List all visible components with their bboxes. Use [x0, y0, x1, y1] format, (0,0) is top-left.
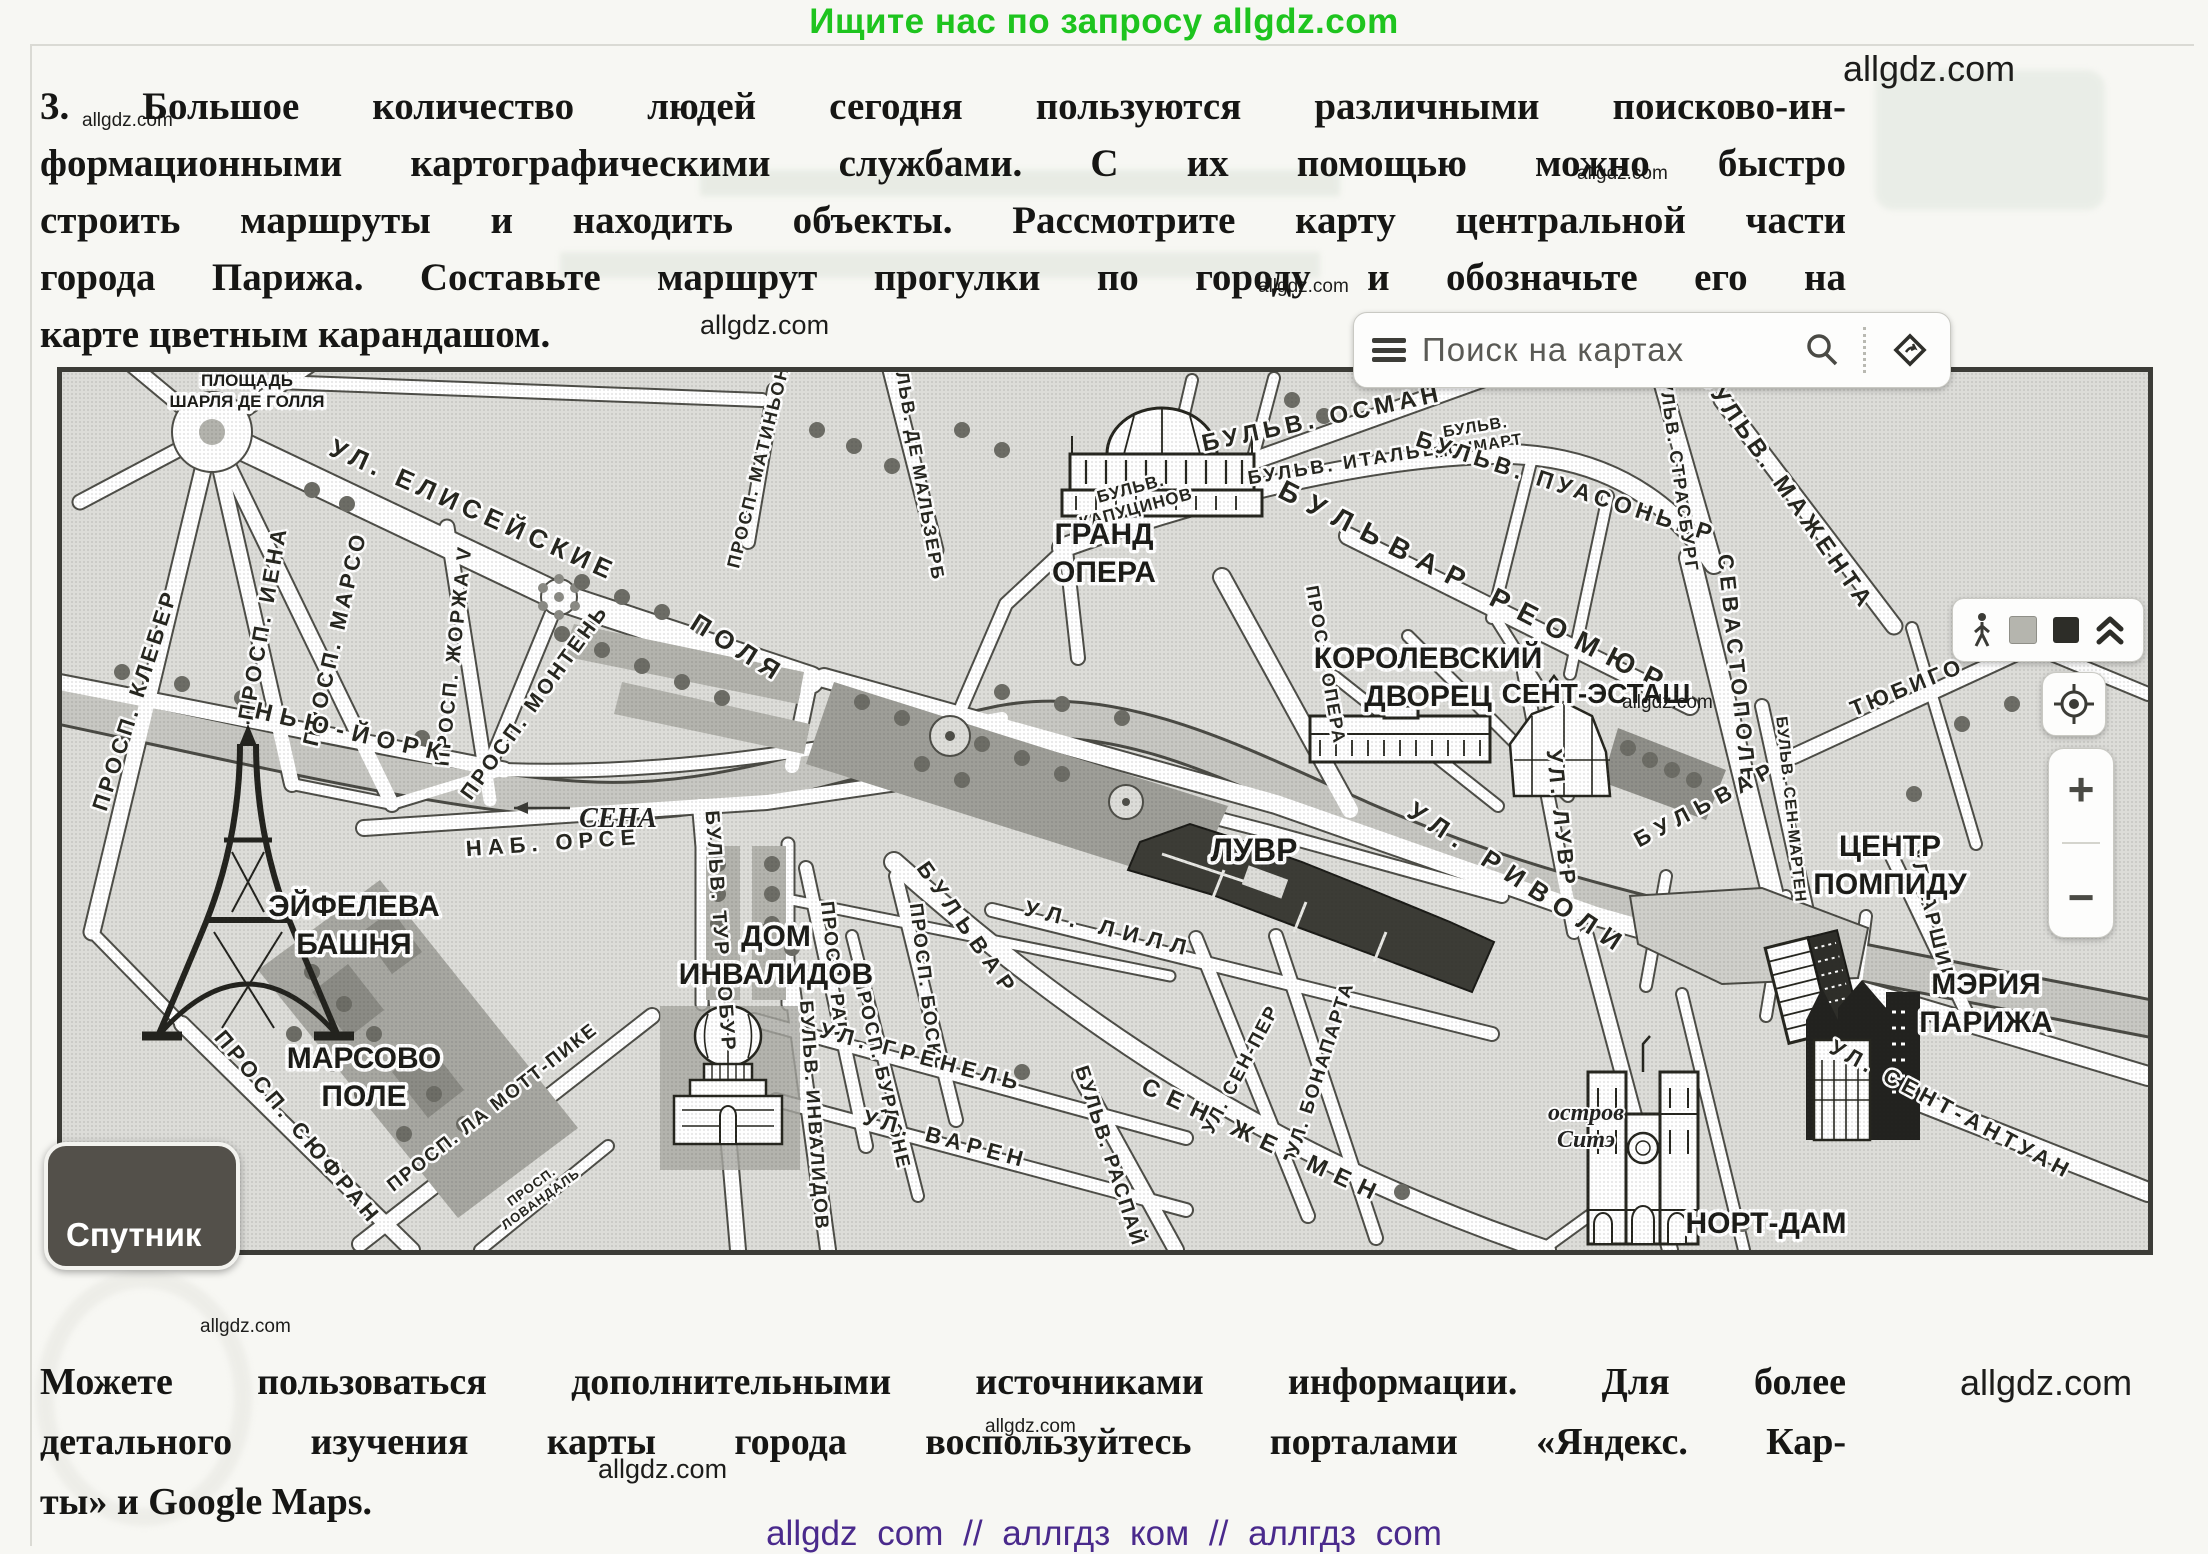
tree-icon	[1954, 716, 1970, 732]
map-canvas[interactable]: УЛ. ЕЛИСЕЙСКИЕПОЛЯПРОСП. КЛЕБЕРПРОСП. ИЕ…	[62, 372, 2148, 1250]
watermark: allgdz.com	[1960, 1362, 2132, 1404]
tree-icon	[634, 658, 650, 674]
zoom-out-button[interactable]: −	[2049, 867, 2113, 927]
bottom-line: Можете пользоваться дополнительными исто…	[40, 1352, 1846, 1412]
layer-light-icon[interactable]	[2009, 616, 2037, 644]
tree-icon	[809, 422, 825, 438]
tree-icon	[396, 1126, 412, 1142]
tree-icon	[339, 496, 355, 512]
tree-icon	[1642, 752, 1658, 768]
tree-icon	[954, 772, 970, 788]
divider	[1863, 327, 1866, 373]
search-input[interactable]: Поиск на картах	[1422, 331, 1787, 369]
double-chevron-up-icon[interactable]	[2095, 613, 2125, 647]
routes-icon[interactable]	[1888, 328, 1932, 372]
tree-icon	[1284, 392, 1300, 408]
tree-icon	[994, 684, 1010, 700]
tree-icon	[894, 710, 910, 726]
bleed-artifact	[1875, 70, 2105, 210]
task-line: 3. Большое количество людей сегодня поль…	[40, 78, 1846, 135]
tree-icon	[846, 438, 862, 454]
tree-icon	[654, 604, 670, 620]
satellite-button-label: Спутник	[66, 1216, 201, 1254]
tree-icon	[614, 589, 630, 605]
tree-icon	[974, 736, 990, 752]
tree-icon	[304, 482, 320, 498]
layer-dark-icon[interactable]	[2053, 617, 2079, 643]
tree-icon	[366, 1026, 382, 1042]
fountain-center	[945, 731, 955, 741]
compass-target-icon	[2052, 682, 2096, 726]
bottom-line: детального изучения карты города восполь…	[40, 1412, 1846, 1472]
map-search-bar[interactable]: Поиск на картах	[1353, 312, 1951, 388]
landmark-label: НОРТ-ДАМ	[1686, 1207, 1847, 1240]
footer-links: allgdz com // аллгдз ком // аллгдз com	[0, 1514, 2208, 1554]
tree-icon	[994, 442, 1010, 458]
tree-icon	[674, 674, 690, 690]
tree-icon	[1394, 1184, 1410, 1200]
tree-icon	[174, 676, 190, 692]
tree-icon	[114, 664, 130, 680]
watermark: allgdz.com	[1843, 48, 2015, 90]
tree-icon	[1054, 696, 1070, 712]
tree-icon	[1686, 772, 1702, 788]
satellite-view-button[interactable]: Спутник	[44, 1142, 240, 1270]
tree-icon	[1054, 766, 1070, 782]
task-line: строить маршруты и находить объекты. Рас…	[40, 192, 1846, 249]
divider	[2062, 842, 2100, 844]
watermark: allgdz.com	[200, 1316, 291, 1338]
zoom-controls[interactable]: + −	[2048, 748, 2114, 938]
workbook-page: Ищите нас по запросу allgdz.com allgdz.c…	[0, 0, 2208, 1554]
landmark-label: ЛУВР	[1211, 832, 1298, 868]
pedestrian-icon[interactable]	[1971, 612, 1993, 648]
tree-icon	[336, 996, 352, 1012]
tree-icon	[764, 886, 780, 902]
tree-icon	[426, 1086, 442, 1102]
tree-icon	[1014, 750, 1030, 766]
landmark-label: СЕНА	[579, 803, 657, 834]
tree-icon	[286, 1026, 302, 1042]
task-line: формационными картографическими службами…	[40, 135, 1846, 192]
site-promo-banner: Ищите нас по запросу allgdz.com	[0, 2, 2208, 42]
tree-icon	[714, 690, 730, 706]
tree-icon	[954, 422, 970, 438]
tree-icon	[2004, 696, 2020, 712]
tree-icon	[1114, 710, 1130, 726]
search-icon[interactable]	[1803, 331, 1841, 369]
paris-map[interactable]: УЛ. ЕЛИСЕЙСКИЕПОЛЯПРОСП. КЛЕБЕРПРОСП. ИЕ…	[57, 367, 2153, 1255]
zoom-in-button[interactable]: +	[2049, 759, 2113, 819]
tree-icon	[914, 756, 930, 772]
bottom-text: Можете пользоваться дополнительными исто…	[40, 1352, 1846, 1532]
tree-icon	[854, 694, 870, 710]
tree-icon	[884, 458, 900, 474]
locate-me-button[interactable]	[2042, 672, 2106, 736]
tree-icon	[764, 856, 780, 872]
watermark: allgdz.com	[1622, 692, 1713, 713]
tree-icon	[1664, 762, 1680, 778]
tree-icon	[594, 642, 610, 658]
fountain-center	[1122, 798, 1130, 806]
landmark-label: островСитэ	[1548, 1100, 1624, 1153]
task-line: города Парижа. Составьте маршрут прогулк…	[40, 249, 1846, 306]
tree-icon	[1620, 740, 1636, 756]
map-layers-panel[interactable]	[1952, 598, 2144, 662]
menu-icon[interactable]	[1372, 338, 1406, 362]
tree-icon	[1906, 786, 1922, 802]
